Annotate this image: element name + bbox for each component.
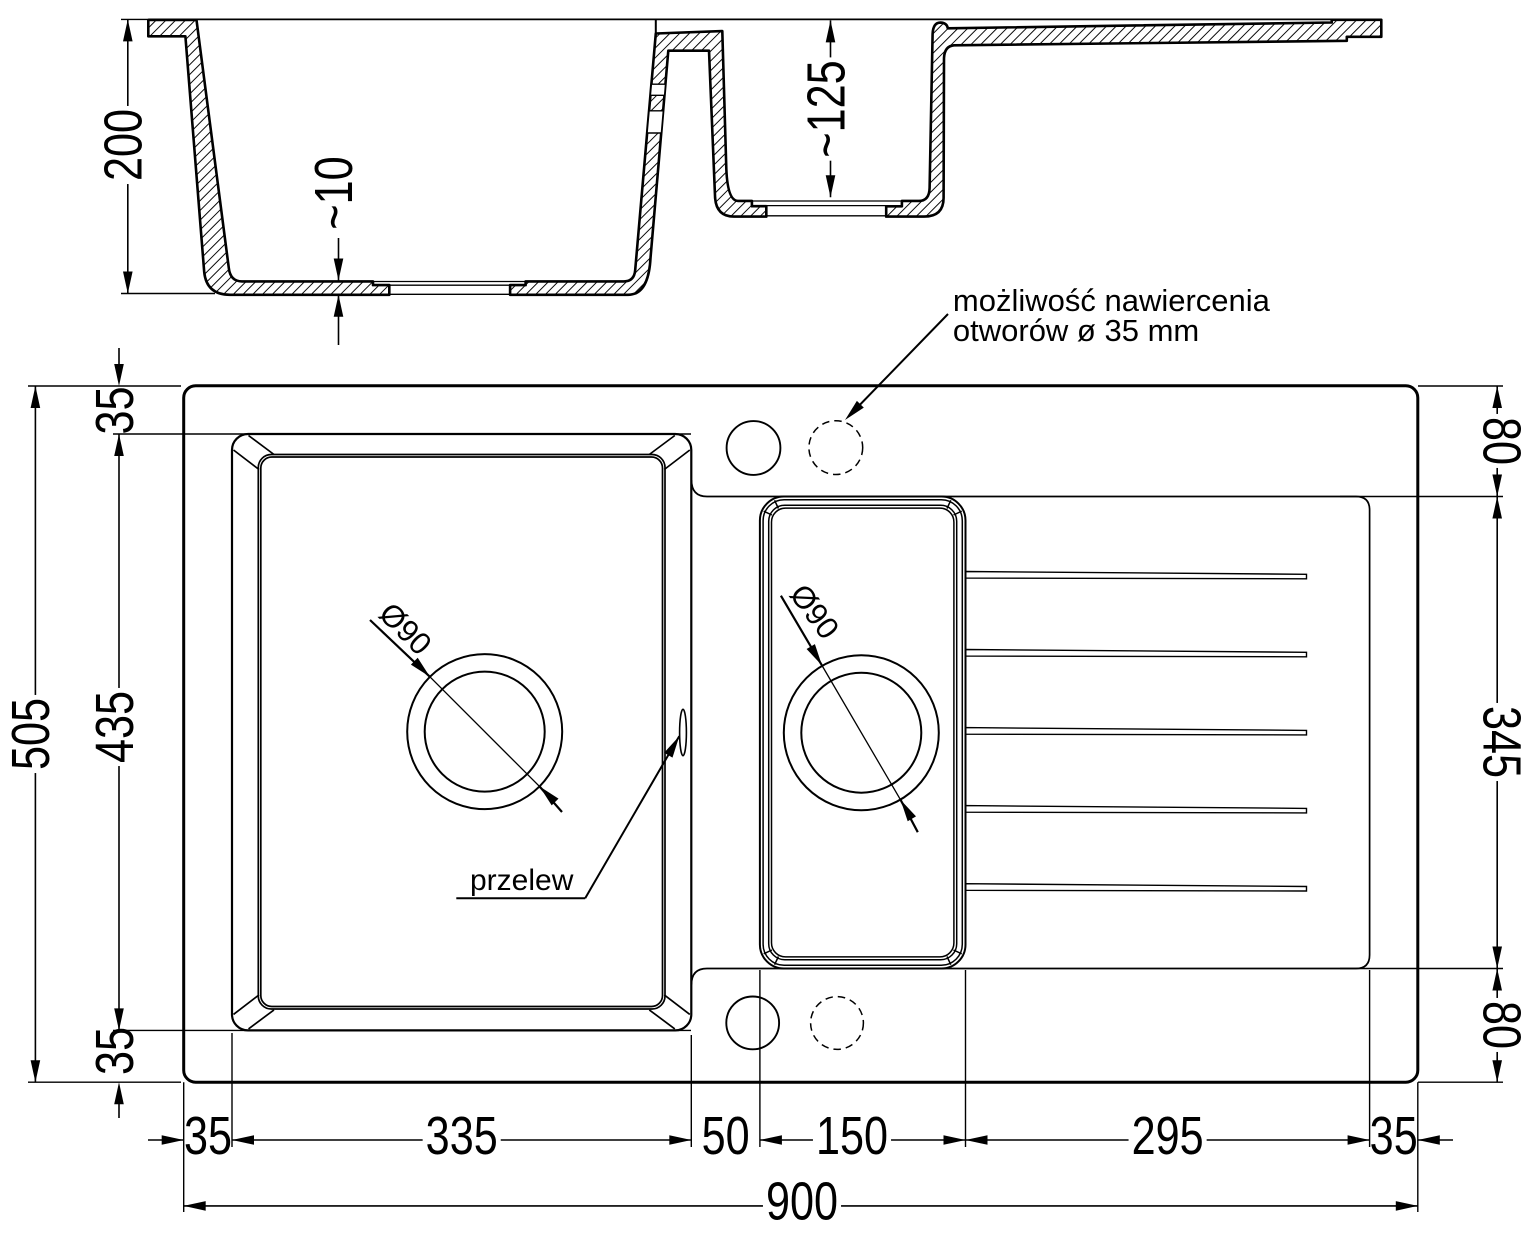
svg-text:35: 35 [85,1027,145,1075]
svg-text:50: 50 [702,1106,750,1166]
svg-text:35: 35 [184,1106,232,1166]
svg-text:~10: ~10 [304,156,364,229]
svg-text:35: 35 [85,386,145,434]
svg-text:900: 900 [766,1172,838,1232]
svg-text:35: 35 [1370,1106,1418,1166]
svg-text:505: 505 [2,698,62,770]
svg-text:otworów ø 35 mm: otworów ø 35 mm [953,313,1199,348]
svg-text:80: 80 [1471,1001,1531,1049]
svg-text:345: 345 [1471,706,1531,778]
svg-text:150: 150 [816,1106,888,1166]
svg-text:335: 335 [426,1106,498,1166]
svg-text:200: 200 [94,109,154,181]
svg-text:~125: ~125 [797,60,857,157]
svg-text:295: 295 [1132,1106,1204,1166]
svg-text:80: 80 [1471,417,1531,465]
svg-text:przelew: przelew [470,864,574,897]
svg-text:435: 435 [85,691,145,763]
